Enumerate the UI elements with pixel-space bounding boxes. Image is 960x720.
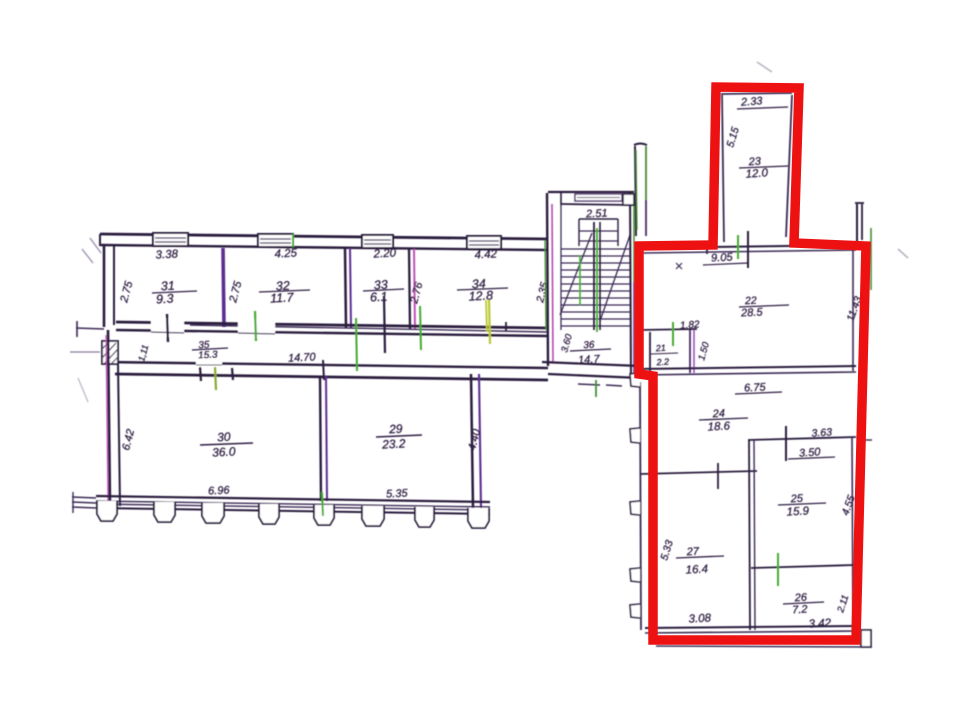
svg-text:2.33: 2.33 <box>740 95 764 109</box>
svg-text:12.0: 12.0 <box>745 167 769 181</box>
svg-text:28.5: 28.5 <box>740 306 764 319</box>
svg-text:23.2: 23.2 <box>381 436 406 451</box>
svg-text:1.82: 1.82 <box>680 319 701 331</box>
svg-text:15.3: 15.3 <box>198 349 218 361</box>
svg-text:22: 22 <box>744 295 757 308</box>
svg-text:29: 29 <box>388 422 403 437</box>
svg-text:5.35: 5.35 <box>386 487 409 500</box>
svg-text:4.42: 4.42 <box>474 248 498 261</box>
svg-text:9.05: 9.05 <box>711 251 734 264</box>
svg-text:2.2: 2.2 <box>655 357 669 368</box>
svg-text:30: 30 <box>217 430 231 445</box>
svg-text:12.8: 12.8 <box>468 288 493 303</box>
svg-text:2.20: 2.20 <box>372 247 397 260</box>
svg-text:4.25: 4.25 <box>274 247 298 260</box>
svg-text:14.70: 14.70 <box>288 351 317 364</box>
svg-text:3.08: 3.08 <box>688 612 712 625</box>
svg-text:16.4: 16.4 <box>685 563 708 576</box>
svg-text:3.63: 3.63 <box>811 426 832 439</box>
svg-text:11.7: 11.7 <box>270 290 295 305</box>
svg-text:3.38: 3.38 <box>155 248 179 261</box>
svg-text:3.42: 3.42 <box>808 617 832 630</box>
svg-text:7.2: 7.2 <box>792 604 808 617</box>
svg-text:6.96: 6.96 <box>208 484 231 497</box>
svg-text:36.0: 36.0 <box>212 444 236 459</box>
svg-text:18.6: 18.6 <box>707 420 731 433</box>
svg-text:15.9: 15.9 <box>786 505 810 518</box>
svg-text:6.1: 6.1 <box>370 290 388 305</box>
svg-text:9.3: 9.3 <box>156 292 174 307</box>
svg-text:21: 21 <box>654 343 666 354</box>
